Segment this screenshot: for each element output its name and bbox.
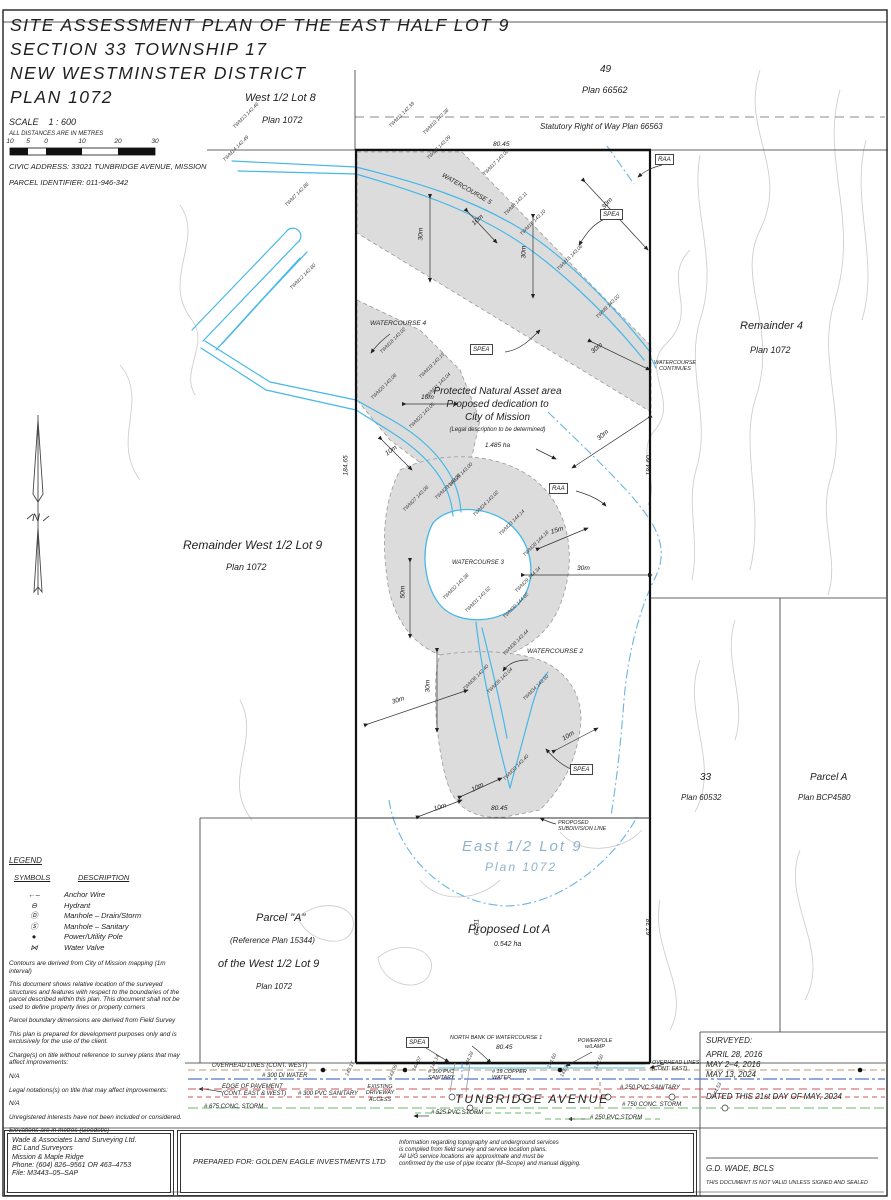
pvc-storm-250-label: # 250 PVC STORM [590, 1115, 642, 1122]
plan-annotation: 30m [577, 565, 590, 572]
legend-col-symbols: SYMBOLS [14, 874, 50, 883]
legend-description: Hydrant [64, 901, 194, 912]
scale-tick-label: 10 [78, 138, 85, 145]
legend-symbol-icon: ←– [4, 890, 64, 901]
watercourse-2-label: WATERCOURSE 2 [527, 648, 583, 656]
note-paragraph: N/A [9, 1100, 187, 1108]
note-paragraph: Unregistered interests have not been inc… [9, 1114, 187, 1122]
validity-note: THIS DOCUMENT IS NOT VALID UNLESS SIGNED… [706, 1180, 868, 1186]
note-paragraph: N/A [9, 1073, 187, 1081]
signer-label: G.D. WADE, BCLS [706, 1164, 774, 1173]
legend-row: ⒹManhole – Drain/Storm [4, 911, 194, 922]
di-water-label: # 300 DI WATER [262, 1073, 307, 1080]
plan-annotation: 67.38 [646, 919, 653, 936]
region-lot49: 49 [600, 64, 611, 76]
note-paragraph: This plan is prepared for development pu… [9, 1031, 187, 1046]
company-line2: BC Land Surveyors [12, 1145, 166, 1153]
plan-annotation: 184.60 [646, 455, 653, 475]
existing-driveway-label: EXISTING DRIVEWAY ACCESS [360, 1084, 400, 1103]
region-lot33: 33 [700, 772, 711, 784]
legend-description: Water Valve [64, 943, 194, 954]
pvc-storm-525-label: # 525 PVC STORM [431, 1110, 483, 1117]
pna-line3: City of Mission [400, 412, 595, 424]
pvc-sanitary-300-label: # 300 PVC SANITARY [298, 1091, 358, 1098]
legend-symbol-icon: ⋈ [4, 943, 64, 954]
note-paragraph: Legal notations(s) on title that may aff… [9, 1087, 187, 1095]
overhead-east-label: OVERHEAD LINES (CONT. EAST) [652, 1060, 699, 1073]
powerpole-label: POWERPOLE w/LAMP [572, 1038, 618, 1051]
scale-tick-label: 5 [26, 138, 30, 145]
company-line3: Mission & Maple Ridge [12, 1154, 166, 1162]
proposed-subdivision-label: PROPOSED SUBDIVISION LINE [558, 820, 606, 833]
legend-symbol-icon: Ⓢ [4, 922, 64, 933]
note-paragraph: This document shows relative location of… [9, 981, 187, 1011]
region-lot33-plan: Plan 60532 [681, 793, 721, 802]
survey-plan-sheet: N SITE ASSESSMENT PLAN OF THE EAST HALF … [0, 0, 891, 1200]
legend-symbol-icon: ⊖ [4, 901, 64, 912]
legend-row: ←–Anchor Wire [4, 890, 194, 901]
region-east-half-plan: Plan 1072 [485, 860, 557, 874]
dated-label: DATED THIS 21st DAY OF MAY, 2024 [706, 1092, 842, 1101]
plan-title-line3: NEW WESTMINSTER DISTRICT [10, 62, 307, 85]
plan-annotation: 30m [425, 680, 432, 693]
raa-tag-1: RAA [655, 154, 674, 165]
plan-annotation: 80.45 [493, 141, 510, 148]
region-lot49-plan: Plan 66562 [582, 85, 628, 96]
surveyor-company-box: Wade & Associates Land Surveying Ltd. BC… [7, 1133, 171, 1193]
region-parcel-a-right-plan: Plan BCP4580 [798, 793, 850, 802]
watercourse-3-label: WATERCOURSE 3 [452, 560, 504, 567]
region-remainder4: Remainder 4 [740, 320, 803, 333]
prepared-for-box: PREPARED FOR: GOLDEN EAGLE INVESTMENTS L… [180, 1133, 694, 1193]
raa-tag-2: RAA [549, 483, 568, 494]
region-east-half: East 1/2 Lot 9 [462, 838, 583, 856]
copper-water-label: # 19 COPPER WATER [492, 1069, 527, 1082]
surveyed-date-1: APRIL 28, 2016 [706, 1050, 762, 1059]
legend-col-description: DESCRIPTION [78, 874, 129, 883]
region-remainder-west-plan: Plan 1072 [226, 562, 267, 573]
scale-bar [10, 148, 155, 155]
legend-symbol-icon: Ⓓ [4, 911, 64, 922]
legend-description: Anchor Wire [64, 890, 194, 901]
plan-annotation: 10m [421, 394, 434, 401]
conc-storm-675-label: # 675 CONC. STORM [204, 1104, 263, 1111]
spea-tag-4: SPEA [406, 1037, 429, 1048]
legend-row: ⓈManhole – Sanitary [4, 922, 194, 933]
region-parcel-a-left-ref: (Reference Plan 15344) [230, 936, 315, 945]
region-parcel-a-left-plan: Plan 1072 [256, 982, 292, 991]
prepared-for-label: PREPARED FOR: GOLDEN EAGLE INVESTMENTS L… [193, 1158, 386, 1167]
edge-pavement-label: EDGE OF PAVEMENT (CONT. EAST & WEST) [222, 1084, 286, 1098]
legend-row: ⋈Water Valve [4, 943, 194, 954]
street-name-label: TUNBRIDGE AVENUE [455, 1092, 609, 1106]
north-bank-label: NORTH BANK OF WATERCOURSE 1 [450, 1035, 542, 1041]
legend-row: ⊖Hydrant [4, 901, 194, 912]
surveyed-date-2: MAY 2–4, 2016 [706, 1060, 760, 1069]
spea-area [357, 152, 651, 817]
surveyed-title: SURVEYED: [706, 1036, 752, 1045]
region-proposed-lot-a-area: 0.542 ha [494, 941, 521, 949]
legend-row: ●Power/Utility Pole [4, 932, 194, 943]
utility-lines [188, 1063, 885, 1119]
plan-title-line4: PLAN 1072 [10, 86, 113, 109]
underground-info-note: Information regarding topography and und… [399, 1140, 581, 1168]
scale-label: SCALE 1 : 600 [9, 117, 76, 128]
scale-tick-label: 20 [114, 138, 121, 145]
conc-storm-750-label: # 750 CONC. STORM [622, 1102, 681, 1109]
region-parcel-a-left-west: of the West 1/2 Lot 9 [218, 958, 319, 971]
watercourse-continues-label: WATERCOURSE CONTINUES [652, 360, 698, 373]
region-west-lot8-plan: Plan 1072 [262, 115, 303, 126]
plan-annotation: 80.45 [491, 805, 508, 812]
region-parcel-a-right: Parcel A [810, 772, 847, 784]
north-arrow: N [27, 415, 49, 595]
plan-annotation: 67.31 [474, 919, 481, 936]
plan-title-line1: SITE ASSESSMENT PLAN OF THE EAST HALF LO… [10, 14, 510, 37]
plan-annotation: 80.45 [496, 1044, 513, 1051]
plan-title-line2: SECTION 33 TOWNSHIP 17 [10, 38, 268, 61]
scale-tick-label: 10 [6, 138, 13, 145]
legend-description: Manhole – Drain/Storm [64, 911, 194, 922]
legend-title: LEGEND [9, 856, 42, 865]
scale-tick-label: 0 [44, 138, 48, 145]
company-line5: File: M3443–05–SAP [12, 1170, 166, 1178]
spea-tag-2: SPEA [470, 344, 493, 355]
region-remainder-west: Remainder West 1/2 Lot 9 [183, 538, 322, 552]
spea-tag-3: SPEA [570, 764, 593, 775]
watercourse-4-label: WATERCOURSE 4 [370, 320, 426, 328]
parcel-identifier: PARCEL IDENTIFIER: 011-946-342 [9, 179, 128, 188]
legend-rows: ←–Anchor Wire⊖HydrantⒹManhole – Drain/St… [4, 890, 194, 953]
north-letter: N [32, 512, 40, 524]
region-remainder4-plan: Plan 1072 [750, 345, 791, 356]
scale-tick-label: 30 [151, 138, 158, 145]
spea-tag-1: SPEA [600, 209, 623, 220]
pna-line4: (Legal description to be determined) [400, 427, 595, 434]
legend-description: Power/Utility Pole [64, 932, 194, 943]
plan-annotation: 30m [418, 228, 425, 241]
plan-annotation: 30m [521, 246, 528, 259]
pvc-sanitary-250-label: # 250 PVC SANITARY [620, 1085, 680, 1092]
legend-description: Manhole – Sanitary [64, 922, 194, 933]
note-paragraph: Charge(s) on title without reference to … [9, 1052, 187, 1067]
plan-annotation: 184.65 [343, 455, 350, 475]
note-paragraph: Contours are derived from City of Missio… [9, 960, 187, 975]
company-line4: Phone: (604) 826–9561 OR 463–4753 [12, 1162, 166, 1170]
legend-symbol-icon: ● [4, 932, 64, 943]
company-line1: Wade & Associates Land Surveying Ltd. [12, 1137, 166, 1145]
note-paragraph: Parcel boundary dimensions are derived f… [9, 1017, 187, 1025]
plan-annotation: 50m [400, 586, 407, 599]
overhead-west-label: OVERHEAD LINES (CONT. WEST) [212, 1063, 307, 1070]
region-parcel-a-left: Parcel "A" [256, 912, 305, 925]
pvc-sanitary-100-label: # 100 PVC SANITARY [428, 1069, 454, 1082]
pna-area: 1.485 ha [400, 442, 595, 450]
surveyed-date-3: MAY 13, 2024 [706, 1070, 756, 1079]
statutory-row-label: Statutory Right of Way Plan 66563 [540, 122, 663, 131]
distances-note: ALL DISTANCES ARE IN METRES [9, 131, 103, 138]
civic-address: CIVIC ADDRESS: 33021 TUNBRIDGE AVENUE, M… [9, 163, 206, 172]
